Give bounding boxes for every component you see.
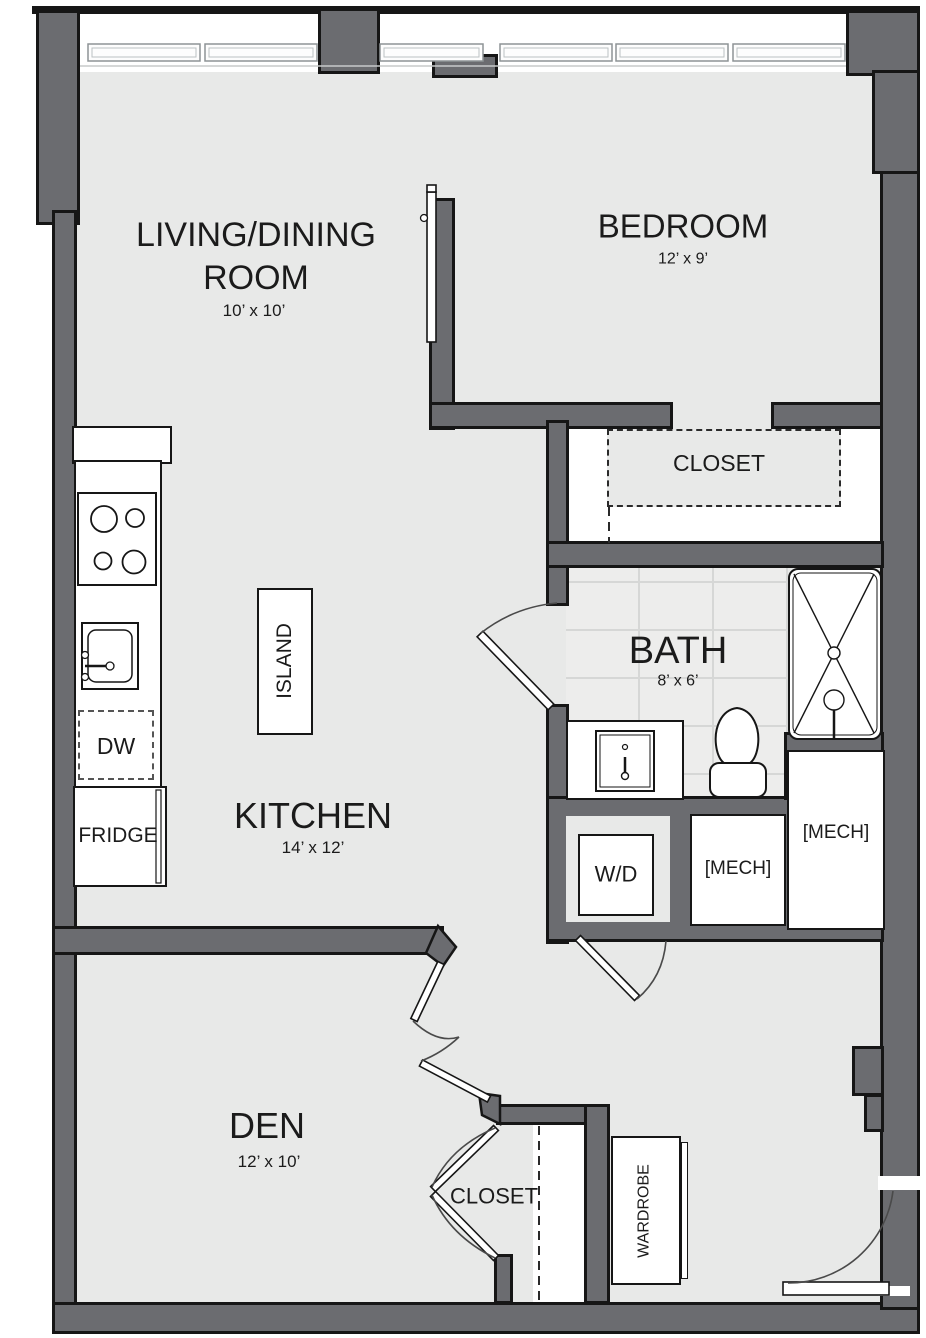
bedroom-dims: 12’ x 9’ — [658, 252, 708, 269]
bath-sink — [596, 731, 654, 791]
closet-door-leaf-a — [431, 1126, 499, 1192]
floor-plan: LIVING/DINING ROOM 10’ x 10’ BEDROOM 12’… — [0, 0, 926, 1338]
detail-overlay — [0, 0, 926, 1338]
bath-door-arc — [481, 603, 557, 633]
stove-burners — [91, 506, 146, 574]
entry-door-leaf — [783, 1282, 889, 1295]
window-frames — [80, 44, 846, 66]
washer-dryer-label: W/D — [595, 862, 638, 885]
den-door-leaf-b — [419, 1060, 490, 1102]
kitchen-sink-basin — [82, 630, 133, 682]
bath-dims: 8’ x 6’ — [657, 674, 698, 691]
closet-dashed-lines — [539, 507, 609, 1302]
kitchen-wall-angled-stub — [426, 926, 456, 966]
kitchen-dims: 14’ x 12’ — [282, 839, 345, 857]
bedroom-sliding-door — [421, 185, 437, 342]
living-room-label-line1: LIVING/DINING — [136, 218, 376, 254]
den-dims: 12’ x 10’ — [238, 1153, 301, 1171]
mech-right-label: [MECH] — [803, 823, 870, 843]
closet-top-label: CLOSET — [673, 451, 765, 475]
den-door-arc-a — [413, 1021, 459, 1039]
wd-door-arc — [637, 941, 666, 999]
den-door-arc-b — [421, 1037, 459, 1061]
living-room-dims: 10’ x 10’ — [223, 302, 286, 320]
closet-bottom-label: CLOSET — [450, 1184, 538, 1207]
fridge-label: FRIDGE — [78, 825, 157, 847]
dishwasher-label: DW — [97, 734, 135, 758]
bath-door-leaf — [477, 631, 554, 710]
den-door-leaf-a — [411, 962, 444, 1022]
den-label: DEN — [229, 1107, 305, 1145]
bath-label: BATH — [629, 632, 728, 672]
entry-door-arc — [788, 1191, 893, 1283]
toilet — [710, 708, 766, 797]
shower-internals — [793, 573, 877, 740]
wd-door-leaf — [576, 936, 640, 1001]
kitchen-label: KITCHEN — [234, 797, 392, 835]
wardrobe-label: WARDROBE — [637, 1164, 654, 1258]
island-label: ISLAND — [274, 623, 296, 699]
living-room-label-line2: ROOM — [203, 261, 309, 297]
mech-middle-label: [MECH] — [705, 859, 772, 879]
bedroom-label: BEDROOM — [598, 210, 769, 245]
